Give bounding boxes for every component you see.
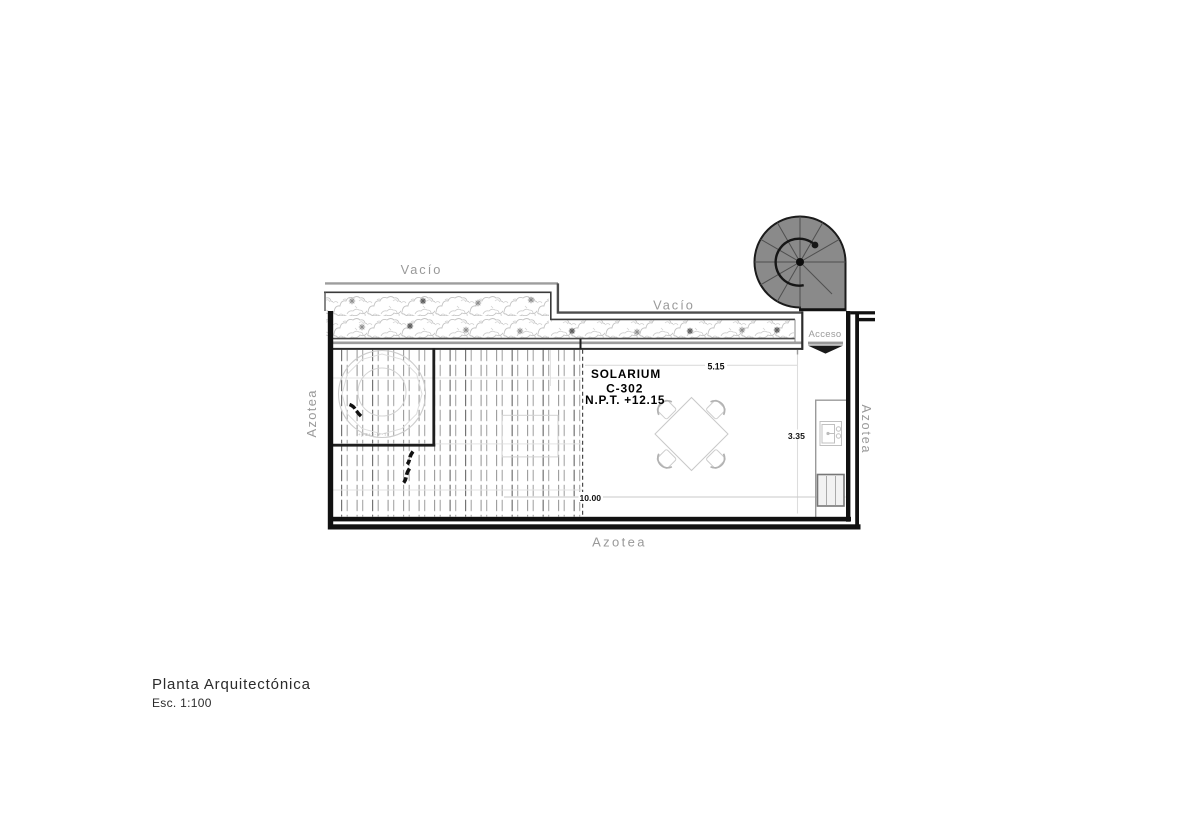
svg-text:5.15: 5.15 bbox=[707, 362, 724, 372]
svg-text:Esc. 1:100: Esc. 1:100 bbox=[152, 696, 212, 710]
svg-text:Planta Arquitectónica: Planta Arquitectónica bbox=[152, 676, 311, 693]
svg-text:Vacío: Vacío bbox=[653, 297, 695, 312]
svg-text:Azotea: Azotea bbox=[592, 534, 647, 549]
svg-text:SOLARIUM: SOLARIUM bbox=[591, 367, 661, 381]
svg-text:Vacío: Vacío bbox=[401, 262, 443, 277]
svg-text:Azotea: Azotea bbox=[304, 389, 319, 437]
svg-text:N.P.T. +12.15: N.P.T. +12.15 bbox=[585, 393, 665, 407]
svg-text:+|-3+3-|+·T: +|-3+3-|+·T bbox=[358, 432, 387, 437]
svg-text:Acceso: Acceso bbox=[809, 329, 842, 340]
svg-text:10.00: 10.00 bbox=[580, 493, 602, 503]
svg-text:3.35: 3.35 bbox=[788, 431, 805, 441]
svg-text:Azotea: Azotea bbox=[859, 405, 873, 455]
